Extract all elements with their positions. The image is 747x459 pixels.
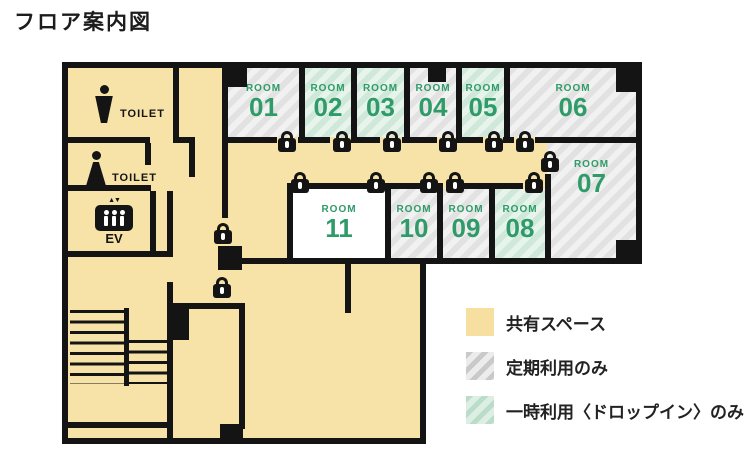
wall xyxy=(636,62,642,264)
wall xyxy=(404,62,410,143)
pillar xyxy=(616,240,636,258)
lock-icon xyxy=(419,172,439,193)
wall xyxy=(495,183,523,189)
legend-item-shared: 共有スペース xyxy=(466,308,606,336)
lock-icon xyxy=(445,172,465,193)
wall xyxy=(173,62,179,143)
wall xyxy=(150,191,156,251)
elevator-label: EV xyxy=(105,232,122,246)
wall xyxy=(62,422,170,428)
wall xyxy=(62,251,173,257)
wall xyxy=(287,183,293,264)
pillar xyxy=(220,424,243,438)
lock-icon xyxy=(332,131,352,152)
elevator-arrows-icon: ▲▼ xyxy=(108,197,120,204)
room-09: ROOM 09 xyxy=(443,189,489,258)
room-08: ROOM 08 xyxy=(495,189,545,258)
wall xyxy=(489,183,495,264)
wall xyxy=(420,258,426,444)
pillar xyxy=(616,68,636,92)
lock-icon xyxy=(290,172,310,193)
toilet-female: TOILET xyxy=(85,151,157,187)
legend-item-regular: 定期利用のみ xyxy=(466,352,608,380)
pillar xyxy=(167,303,189,340)
elevator-icon xyxy=(95,205,133,231)
wall xyxy=(62,137,150,143)
room-05: ROOM 05 xyxy=(462,68,504,137)
wall xyxy=(167,191,173,251)
toilet-male: TOILET xyxy=(93,85,165,123)
legend-item-dropin: 一時利用〈ドロップイン〉のみ xyxy=(466,396,744,424)
wall xyxy=(504,62,510,143)
legend-swatch-shared xyxy=(466,308,494,336)
room-11: ROOM 11 xyxy=(293,189,385,258)
lock-icon xyxy=(277,131,297,152)
wall xyxy=(437,183,443,264)
wall xyxy=(385,183,391,264)
lock-icon xyxy=(438,131,458,152)
pillar xyxy=(218,246,242,270)
wall xyxy=(345,264,351,313)
lock-icon xyxy=(524,172,544,193)
pillar xyxy=(228,68,247,87)
lock-icon xyxy=(213,223,233,244)
wall xyxy=(535,137,636,143)
wall xyxy=(189,303,245,309)
wall xyxy=(299,62,305,143)
wall xyxy=(218,258,642,264)
elevator: ▲▼ EV xyxy=(90,197,138,246)
toilet-label: TOILET xyxy=(120,108,165,120)
room-10: ROOM 10 xyxy=(391,189,437,258)
female-person-icon xyxy=(85,151,107,187)
wall xyxy=(545,174,551,264)
wall xyxy=(189,137,195,177)
page-title: フロア案内図 xyxy=(14,6,152,36)
lock-icon xyxy=(515,131,535,152)
wall xyxy=(62,438,426,444)
pillar xyxy=(428,68,446,82)
wall xyxy=(222,137,277,143)
lock-icon xyxy=(382,131,402,152)
lock-icon xyxy=(484,131,504,152)
legend-swatch-regular xyxy=(466,352,494,380)
room-02: ROOM 02 xyxy=(305,68,351,137)
staircase-right-flight xyxy=(129,340,167,384)
wall xyxy=(391,183,420,189)
male-person-icon xyxy=(93,85,115,123)
staircase-left-flight xyxy=(70,310,124,384)
wall xyxy=(239,303,245,429)
lock-icon xyxy=(366,172,386,193)
wall xyxy=(124,308,129,386)
room-03: ROOM 03 xyxy=(357,68,404,137)
wall xyxy=(305,183,371,189)
legend-swatch-dropin xyxy=(466,396,494,424)
toilet-label: TOILET xyxy=(112,172,157,184)
lock-icon xyxy=(212,277,232,298)
lock-icon xyxy=(540,151,560,172)
